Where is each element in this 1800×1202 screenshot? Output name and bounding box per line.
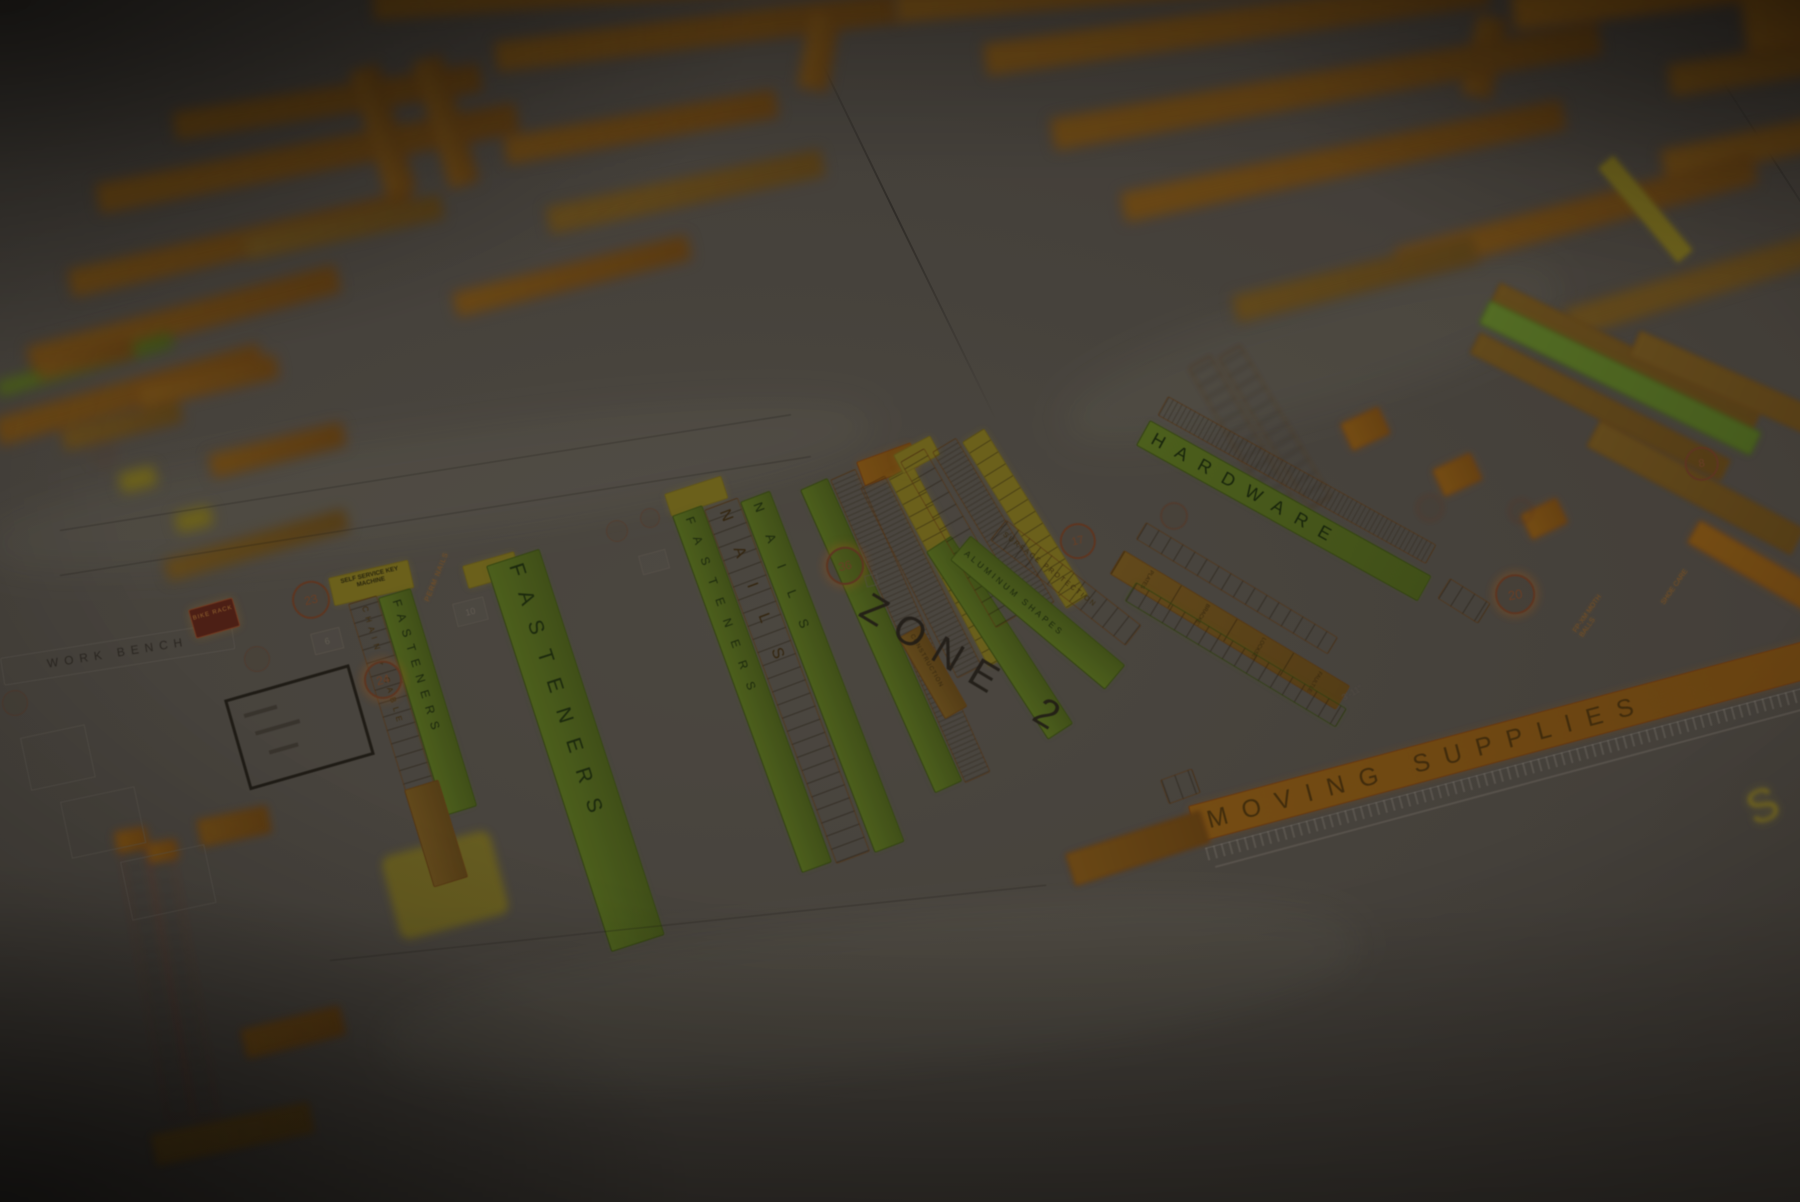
- wall-hatching: [1205, 680, 1800, 861]
- cabinet-outline: [120, 844, 217, 921]
- shelf-tag-text: PERM NAILS: [424, 551, 450, 602]
- aisle-number-text: 36: [837, 557, 853, 574]
- circled-number-small: [606, 520, 628, 542]
- square-marker: 10: [452, 596, 489, 627]
- aisle-number-text: 8: [1698, 457, 1706, 470]
- aisle-number-text: 23: [303, 591, 319, 608]
- aisle-end-cells: [1437, 578, 1490, 624]
- aisle-number-text: 20: [1507, 586, 1524, 603]
- circled-aisle-number: 20: [1492, 571, 1538, 617]
- cabinet-outline: [20, 724, 96, 791]
- key-machine-label: SELF SERVICE KEY MACHINE: [330, 563, 411, 595]
- circled-aisle-number: 8: [1682, 444, 1721, 483]
- shelf-tag-text: SHOE CARE: [1660, 568, 1689, 606]
- shelf-tag-perm-nails: PERM NAILS: [424, 551, 450, 602]
- service-counter-outline: [224, 664, 375, 790]
- circled-number-blurred: [1160, 502, 1188, 530]
- aisle-number-text: 17: [1070, 534, 1085, 549]
- stool-circle: [2, 690, 28, 716]
- shelf-tag-shoe-care: SHOE CARE: [1660, 566, 1692, 607]
- square-marker-text: 10: [464, 606, 476, 618]
- square-marker-blank: [638, 549, 670, 576]
- aisle-fasteners-main: FASTENERS: [486, 549, 665, 952]
- aisle-number-text: 24: [375, 671, 391, 688]
- aisle-endcap-cells: [1160, 768, 1201, 804]
- counter-scribble: [269, 742, 299, 754]
- shelf-tag-moth-balls: FP-XM MOTH BALLS: [1572, 589, 1614, 639]
- aisle-strip: [1065, 810, 1211, 886]
- bike-rack-label: BIKE RACK: [191, 604, 235, 623]
- aisle-strip-green: [1125, 582, 1347, 728]
- circled-aisle-number: 23: [288, 577, 334, 623]
- pencil-line: [330, 885, 1046, 961]
- store-floorplan-photo: WORK BENCH BIKE RACK 23 6 SELF SERVICE K…: [0, 0, 1800, 1202]
- counter-scribble: [255, 719, 300, 736]
- square-marker: 6: [310, 627, 344, 656]
- shelf-tag-text: FP-XM MOTH BALLS: [1572, 594, 1603, 639]
- cabinet-outline: [60, 786, 146, 859]
- aisle-label-fasteners: FASTENERS: [503, 560, 612, 832]
- circled-number-small: [640, 508, 660, 528]
- aisle-label-moving-supplies: MOVING SUPPLIES: [1190, 689, 1651, 839]
- counter-scribble: [244, 705, 278, 718]
- square-marker-text: 6: [324, 636, 331, 647]
- focal-plan-area: WORK BENCH BIKE RACK 23 6 SELF SERVICE K…: [0, 0, 1800, 1202]
- stool-circle: [244, 646, 270, 672]
